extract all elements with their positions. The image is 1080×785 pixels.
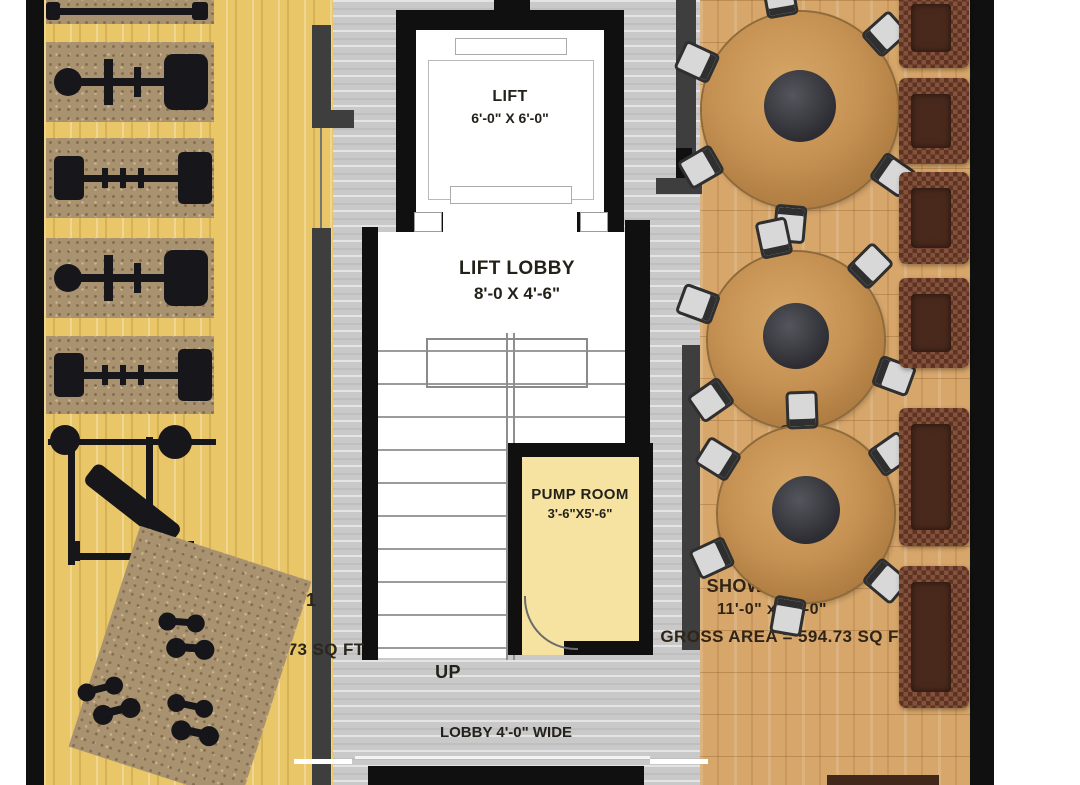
stair-tread bbox=[378, 515, 506, 517]
bench-foot bbox=[72, 541, 80, 561]
stair-railing bbox=[426, 338, 588, 388]
sofa-seat bbox=[911, 424, 951, 530]
lift-door-opening bbox=[443, 210, 577, 234]
lift-door-jamb bbox=[414, 212, 442, 232]
gym-machine-mat bbox=[46, 0, 214, 24]
sofa-seat bbox=[911, 94, 951, 148]
door-dash bbox=[294, 759, 352, 764]
lift-lobby-dims: 8'-0 X 4'-6" bbox=[474, 284, 560, 304]
barbell-plate bbox=[158, 425, 192, 459]
sofa-seat bbox=[911, 582, 951, 692]
lift-inner-outline bbox=[428, 60, 594, 200]
sofa bbox=[899, 78, 969, 164]
entry-wall-bottom bbox=[368, 766, 644, 785]
sofa bbox=[899, 566, 969, 708]
stair-tread bbox=[378, 548, 506, 550]
lift-label: LIFT bbox=[492, 88, 527, 106]
dumbbell-pair bbox=[73, 672, 149, 736]
outer-wall-left bbox=[26, 0, 44, 785]
stair-tread bbox=[378, 482, 506, 484]
lift-door-mech-bottom bbox=[450, 186, 572, 204]
table-center-disc bbox=[772, 476, 840, 544]
sofa bbox=[899, 172, 969, 264]
stair-tread bbox=[378, 647, 506, 649]
pump-room-label: PUMP ROOM bbox=[531, 486, 629, 503]
stair-core-wall-right bbox=[625, 220, 650, 445]
stair-tread bbox=[378, 614, 506, 616]
door-dash bbox=[650, 759, 708, 764]
outer-wall-right bbox=[970, 0, 994, 785]
sofa bbox=[899, 278, 969, 368]
lift-door-jamb bbox=[580, 212, 608, 232]
sofa-seat bbox=[911, 4, 951, 52]
stair-up-label: UP bbox=[435, 662, 461, 683]
dining-chair bbox=[785, 390, 818, 429]
lift-door-mech-top bbox=[455, 38, 567, 55]
lift-lobby-label: LIFT LOBBY bbox=[459, 258, 575, 280]
door-opening-line bbox=[320, 128, 322, 230]
partition-wall bbox=[312, 25, 331, 111]
stair-core-wall-left bbox=[362, 227, 378, 660]
table-center-disc bbox=[764, 70, 836, 142]
lobby-threshold-line bbox=[355, 756, 650, 759]
partition-wall bbox=[312, 110, 354, 128]
partition-wall bbox=[312, 228, 331, 785]
sofa bbox=[899, 408, 969, 546]
gym-machine-mat bbox=[46, 42, 214, 122]
gym-machine-mat bbox=[46, 238, 214, 318]
gym-machine-mat bbox=[46, 336, 214, 414]
dining-chair bbox=[769, 595, 807, 638]
stair-tread bbox=[378, 449, 506, 451]
sofa-seat bbox=[911, 188, 951, 248]
pump-room-dims: 3'-6"X5'-6" bbox=[548, 507, 613, 522]
gym-machine-mat bbox=[46, 138, 214, 218]
sofa-seat bbox=[911, 294, 951, 352]
stair-tread bbox=[378, 581, 506, 583]
stair-tread bbox=[378, 416, 625, 418]
floor-plan: LIFT 6'-0" X 6'-0" LIFT LOBBY 8'-0 X 4'-… bbox=[0, 0, 1080, 785]
sofa bbox=[899, 0, 969, 68]
barbell-plate bbox=[50, 425, 80, 455]
lobby-label: LOBBY 4'-0" WIDE bbox=[440, 724, 572, 741]
lift-dims: 6'-0" X 6'-0" bbox=[471, 110, 549, 126]
furniture-edge bbox=[827, 775, 939, 785]
table-center-disc bbox=[763, 303, 829, 369]
